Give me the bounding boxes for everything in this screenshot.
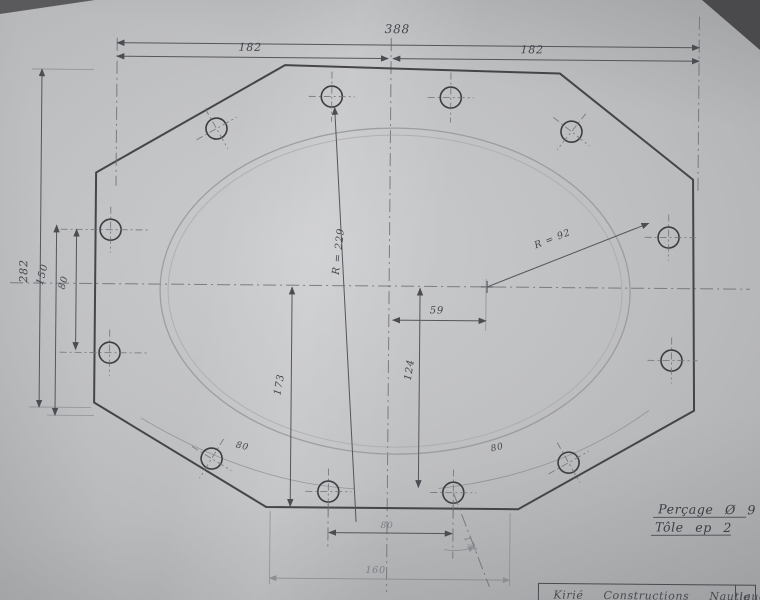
title-block-date: le 2	[739, 592, 760, 600]
dim-vertical-offset-left: 173	[271, 287, 292, 506]
dim-vertical-offset-right-label: 124	[403, 358, 417, 381]
drawing-notes: Perçage Ø 9 Tôle ep 2	[651, 501, 756, 536]
dim-vertical-offset-left-label: 173	[272, 373, 287, 396]
dim-left-hole-pitch: 80	[56, 229, 76, 349]
dim-corner-radius-label: R = 92	[532, 227, 572, 252]
title-block-line: Kirié Constructions Nautiques	[552, 589, 760, 600]
dim-left-pitch-label: 80	[57, 275, 71, 291]
title-block: Kirié Constructions Nautiques le 2	[538, 583, 760, 600]
hole-mark	[59, 329, 147, 376]
dim-overall-height-label: 282	[17, 259, 30, 284]
hole-mark	[644, 214, 695, 260]
dim-hole-angle: 17°	[444, 493, 491, 587]
hole-mark	[180, 427, 243, 490]
hole-mark	[647, 337, 697, 383]
dim-hole-angle-label: 17°	[461, 534, 478, 555]
dim-top-left-label: 182	[238, 41, 262, 54]
hole-mark	[185, 97, 248, 160]
dim-bottom-pitch-label: 80	[380, 521, 393, 531]
photo-corner-dark-left	[0, 0, 95, 14]
dim-bottom-span-label: 160	[365, 565, 386, 576]
centerlines	[7, 35, 752, 595]
dim-top-spans: 182 182	[117, 40, 699, 62]
dim-left-span: 150	[34, 225, 96, 416]
dim-bottom-hole-pitch: 80	[328, 505, 453, 559]
ellipse-cutout	[159, 126, 632, 456]
photo-corner-dark-right	[702, 0, 760, 50]
dim-major-radius-label: R = 229	[331, 227, 347, 276]
hole-mark	[428, 72, 474, 122]
plate-outline	[93, 64, 697, 511]
dim-vertical-offset-right: 124	[402, 288, 420, 487]
dim-arc-left-label: 80	[235, 440, 250, 453]
blueprint-drawing: 388 182 182 282 150 80	[0, 0, 760, 600]
dim-horizontal-offset-label: 59	[430, 305, 444, 316]
hole-mark	[537, 431, 600, 494]
photographed-drawing: 388 182 182 282 150 80	[0, 0, 760, 600]
dim-left-span-label: 150	[35, 263, 51, 287]
hole-mark	[539, 99, 604, 164]
dim-overall-width: 388	[116, 12, 699, 191]
hole-mark	[309, 71, 355, 121]
dim-major-radius: R = 229	[329, 108, 360, 522]
note-sheet: Tôle ep 2	[655, 519, 732, 535]
dim-overall-width-label: 388	[385, 22, 410, 36]
dim-arc-right-label: 80	[490, 442, 505, 455]
dim-corner-radius: R = 92	[481, 222, 649, 294]
drilled-holes	[58, 69, 700, 518]
dim-top-right-label: 182	[520, 43, 544, 56]
hole-mark	[60, 206, 148, 253]
note-drilling: Perçage Ø 9	[657, 501, 756, 517]
